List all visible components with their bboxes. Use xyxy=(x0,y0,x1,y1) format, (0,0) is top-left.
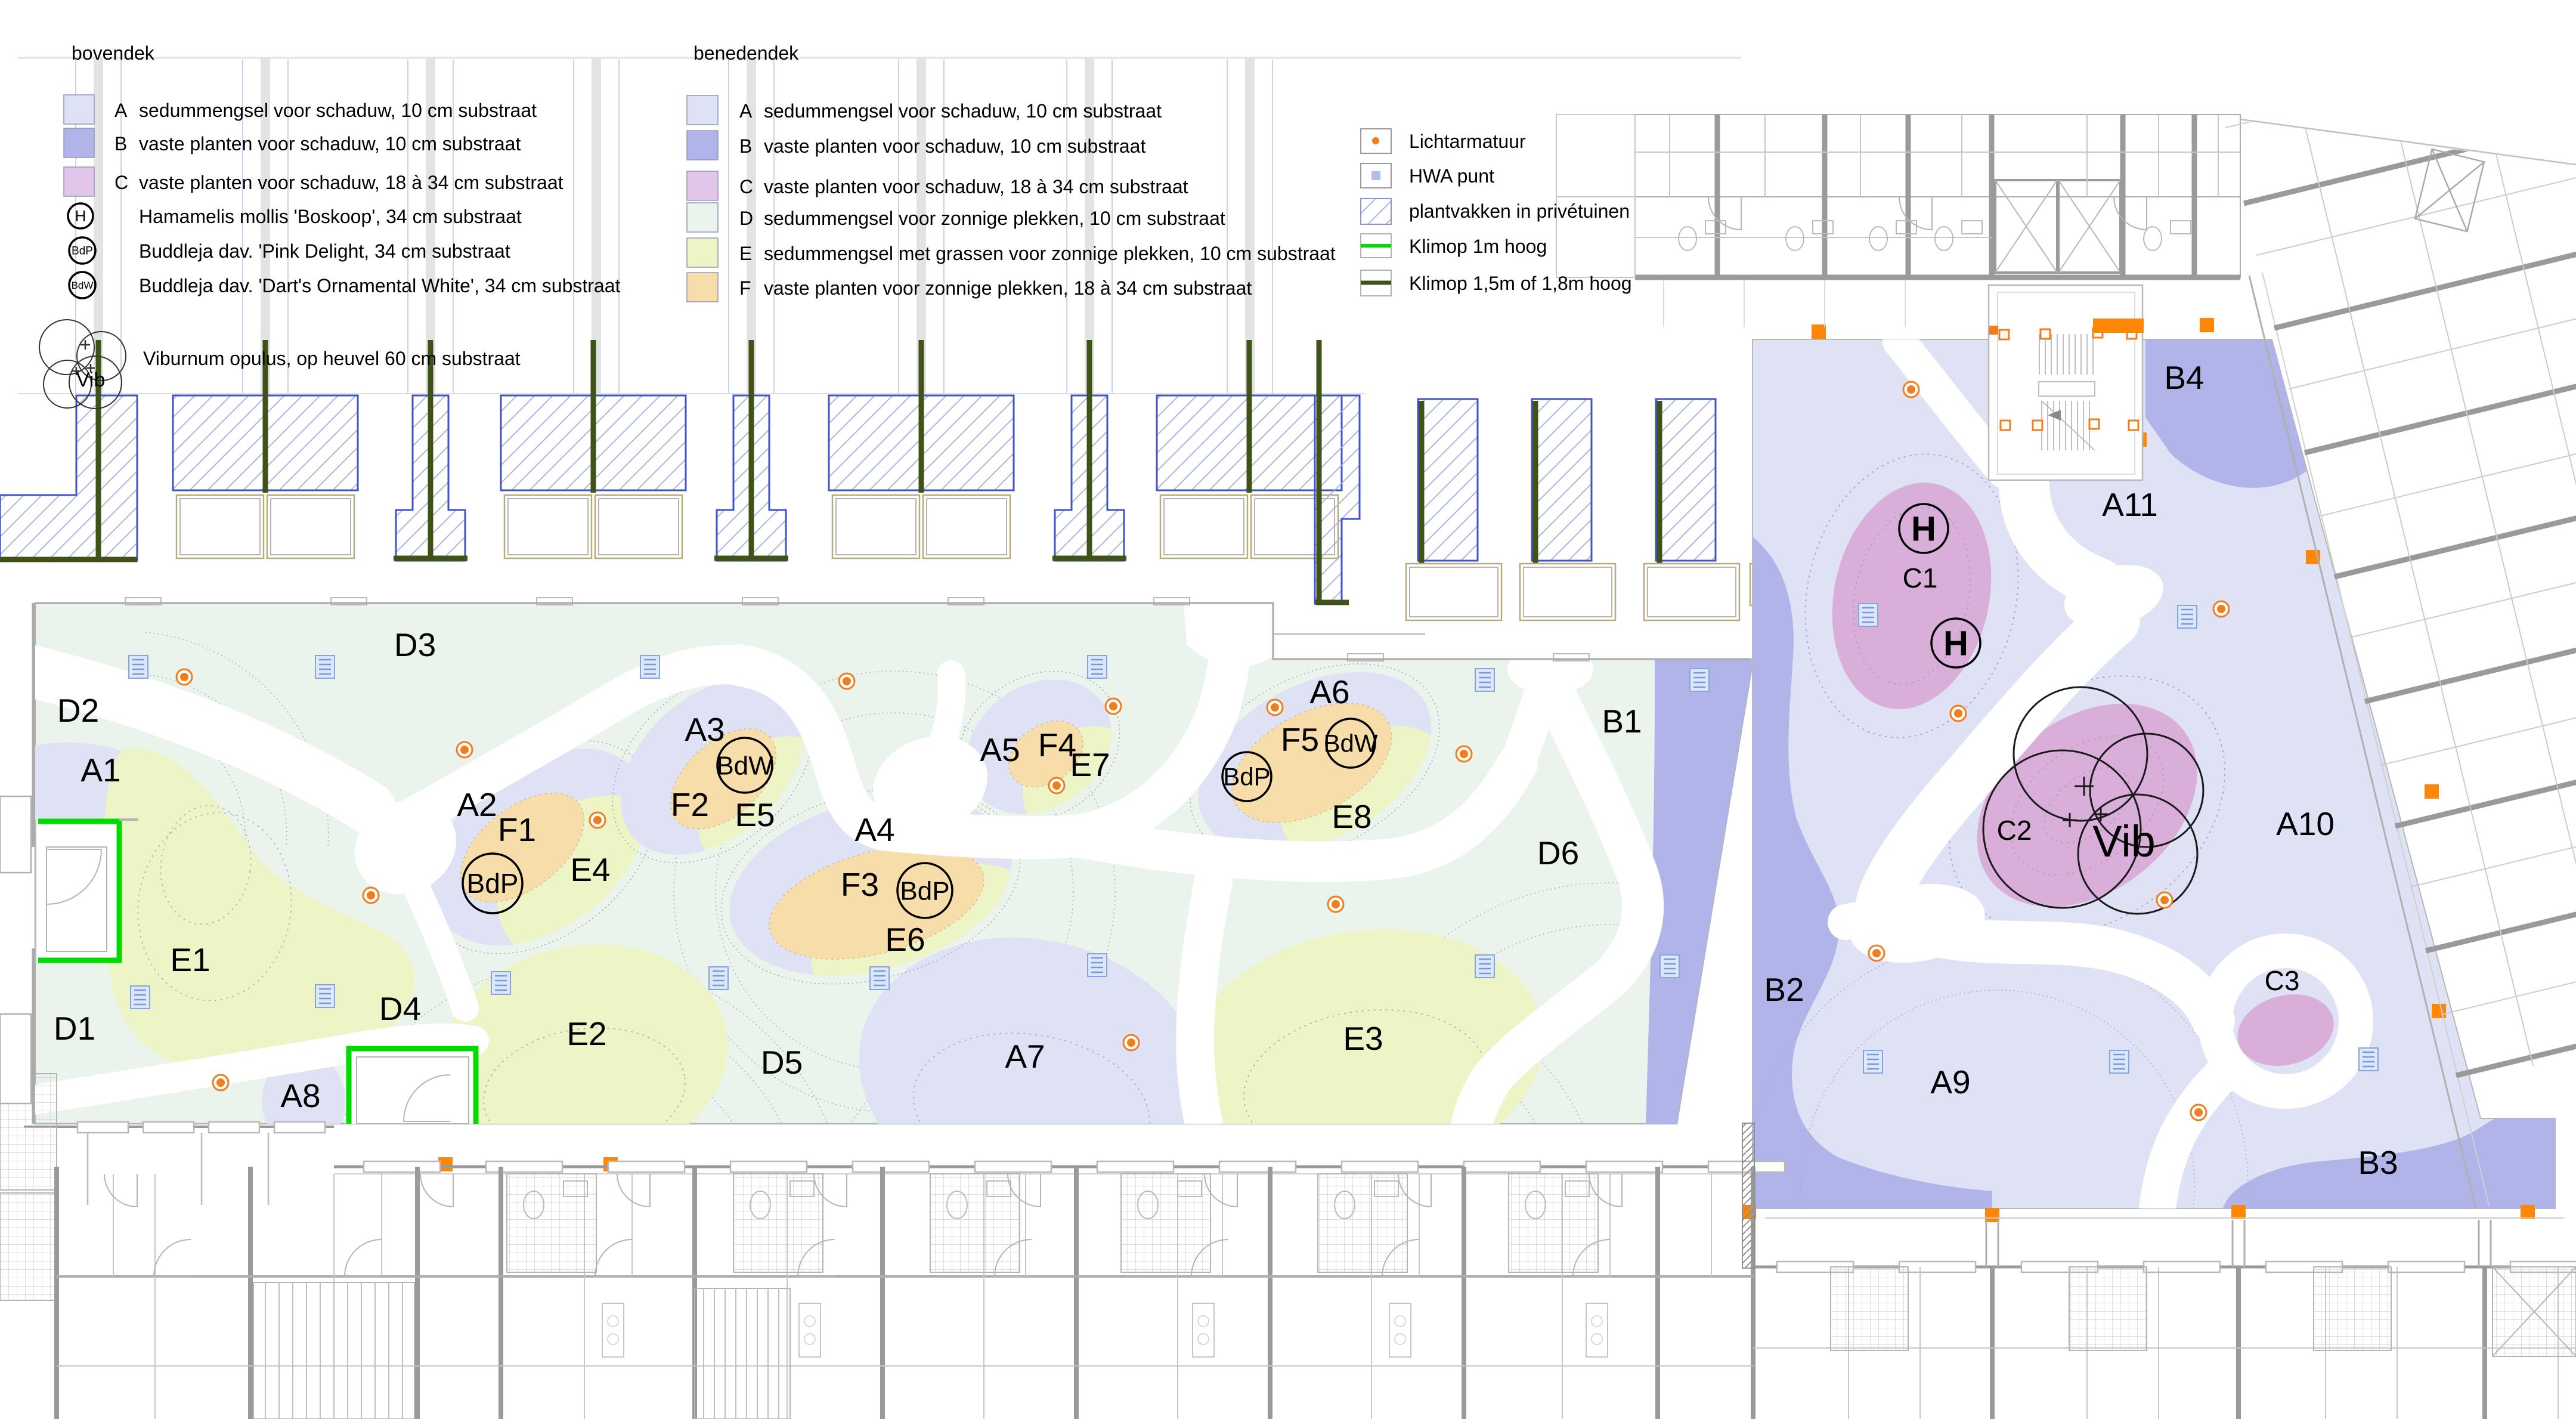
svg-text:F: F xyxy=(739,277,751,299)
svg-text:E8: E8 xyxy=(1332,798,1371,835)
svg-text:Buddleja dav. 'Pink Delight, 3: Buddleja dav. 'Pink Delight, 34 cm subst… xyxy=(139,240,510,262)
svg-text:Klimop 1,5m of 1,8m hoog: Klimop 1,5m of 1,8m hoog xyxy=(1409,273,1632,294)
svg-text:C: C xyxy=(114,172,128,193)
svg-text:E1: E1 xyxy=(170,941,210,978)
svg-text:B3: B3 xyxy=(2358,1144,2398,1181)
svg-text:E6: E6 xyxy=(885,921,925,958)
svg-text:B: B xyxy=(739,135,752,157)
svg-text:BdW: BdW xyxy=(1323,729,1377,758)
svg-text:BdW: BdW xyxy=(72,280,94,291)
svg-text:F5: F5 xyxy=(1281,721,1319,758)
svg-text:plantvakken in privétuinen: plantvakken in privétuinen xyxy=(1409,200,1630,222)
svg-text:D: D xyxy=(739,208,753,229)
svg-text:D1: D1 xyxy=(54,1010,95,1047)
svg-text:E5: E5 xyxy=(735,796,775,833)
svg-text:A8: A8 xyxy=(280,1077,320,1114)
svg-text:sedummengsel met grassen voor: sedummengsel met grassen voor zonnige pl… xyxy=(764,243,1336,264)
svg-text:Viburnum opulus, op heuvel 60: Viburnum opulus, op heuvel 60 cm substra… xyxy=(143,348,521,369)
svg-text:BdP: BdP xyxy=(72,245,93,258)
svg-text:BdW: BdW xyxy=(716,751,773,780)
svg-text:A1: A1 xyxy=(80,752,120,789)
svg-text:sedummengsel voor schaduw, 10: sedummengsel voor schaduw, 10 cm substra… xyxy=(139,100,537,121)
svg-text:C2: C2 xyxy=(1997,815,2032,846)
svg-text:A9: A9 xyxy=(1930,1064,1970,1100)
svg-text:B: B xyxy=(114,133,127,154)
svg-text:E2: E2 xyxy=(566,1015,606,1052)
svg-text:F1: F1 xyxy=(498,811,536,848)
svg-text:E4: E4 xyxy=(570,851,610,888)
svg-text:B4: B4 xyxy=(2164,359,2204,396)
svg-text:BdP: BdP xyxy=(900,876,949,905)
svg-text:vaste planten voor schaduw, 1: vaste planten voor schaduw, 18 à 34 cm s… xyxy=(764,176,1188,197)
svg-text:A7: A7 xyxy=(1005,1038,1045,1075)
svg-text:A2: A2 xyxy=(457,786,497,823)
svg-text:C: C xyxy=(739,176,753,197)
svg-text:A5: A5 xyxy=(980,731,1020,768)
svg-text:A4: A4 xyxy=(854,811,894,848)
svg-text:Lichtarmatuur: Lichtarmatuur xyxy=(1409,131,1526,152)
svg-text:H: H xyxy=(1911,509,1936,548)
svg-text:Vib: Vib xyxy=(2092,817,2156,866)
svg-text:A10: A10 xyxy=(2276,805,2334,842)
svg-text:A: A xyxy=(114,100,128,121)
svg-text:C1: C1 xyxy=(1903,562,1938,593)
svg-text:D6: D6 xyxy=(1537,834,1579,871)
svg-text:Hamamelis mollis 'Boskoop', 34: Hamamelis mollis 'Boskoop', 34 cm substr… xyxy=(139,206,522,227)
svg-text:Klimop 1m hoog: Klimop 1m hoog xyxy=(1409,236,1547,257)
svg-text:BdP: BdP xyxy=(1223,763,1270,791)
svg-text:A6: A6 xyxy=(1309,673,1349,710)
svg-text:A3: A3 xyxy=(685,711,724,748)
svg-text:vaste planten voor zonnige ple: vaste planten voor zonnige plekken, 18 à… xyxy=(764,277,1252,299)
svg-text:D2: D2 xyxy=(57,692,99,729)
svg-text:Buddleja dav. 'Dart's Ornament: Buddleja dav. 'Dart's Ornamental White',… xyxy=(139,275,621,296)
svg-text:C3: C3 xyxy=(2265,965,2300,996)
svg-text:sedummengsel voor schaduw, 10: sedummengsel voor schaduw, 10 cm substra… xyxy=(764,100,1162,122)
svg-text:benedendek: benedendek xyxy=(693,42,799,64)
svg-text:A: A xyxy=(739,100,753,122)
svg-text:F3: F3 xyxy=(841,866,879,903)
svg-text:D4: D4 xyxy=(379,990,421,1027)
svg-text:vaste planten voor schaduw, 10: vaste planten voor schaduw, 10 cm substr… xyxy=(764,135,1145,157)
svg-text:E: E xyxy=(739,243,752,264)
svg-text:BdP: BdP xyxy=(467,868,519,899)
svg-text:A11: A11 xyxy=(2102,486,2158,523)
svg-text:H: H xyxy=(1943,624,1968,663)
svg-text:D3: D3 xyxy=(394,626,436,663)
svg-text:F2: F2 xyxy=(671,786,709,823)
svg-text:E3: E3 xyxy=(1343,1020,1383,1057)
svg-text:B1: B1 xyxy=(1602,703,1642,740)
svg-text:D5: D5 xyxy=(761,1044,803,1081)
svg-text:bovendek: bovendek xyxy=(72,42,155,64)
svg-text:H: H xyxy=(75,207,86,225)
svg-text:sedummengsel voor zonnige plek: sedummengsel voor zonnige plekken, 10 cm… xyxy=(764,208,1225,229)
svg-text:Vib: Vib xyxy=(76,369,106,391)
svg-text:HWA punt: HWA punt xyxy=(1409,165,1494,187)
svg-text:vaste planten voor schaduw, 1: vaste planten voor schaduw, 18 à 34 cm s… xyxy=(139,172,563,193)
svg-text:vaste planten voor schaduw, 10: vaste planten voor schaduw, 10 cm substr… xyxy=(139,133,521,154)
svg-text:B2: B2 xyxy=(1764,971,1804,1008)
svg-text:E7: E7 xyxy=(1070,746,1110,783)
